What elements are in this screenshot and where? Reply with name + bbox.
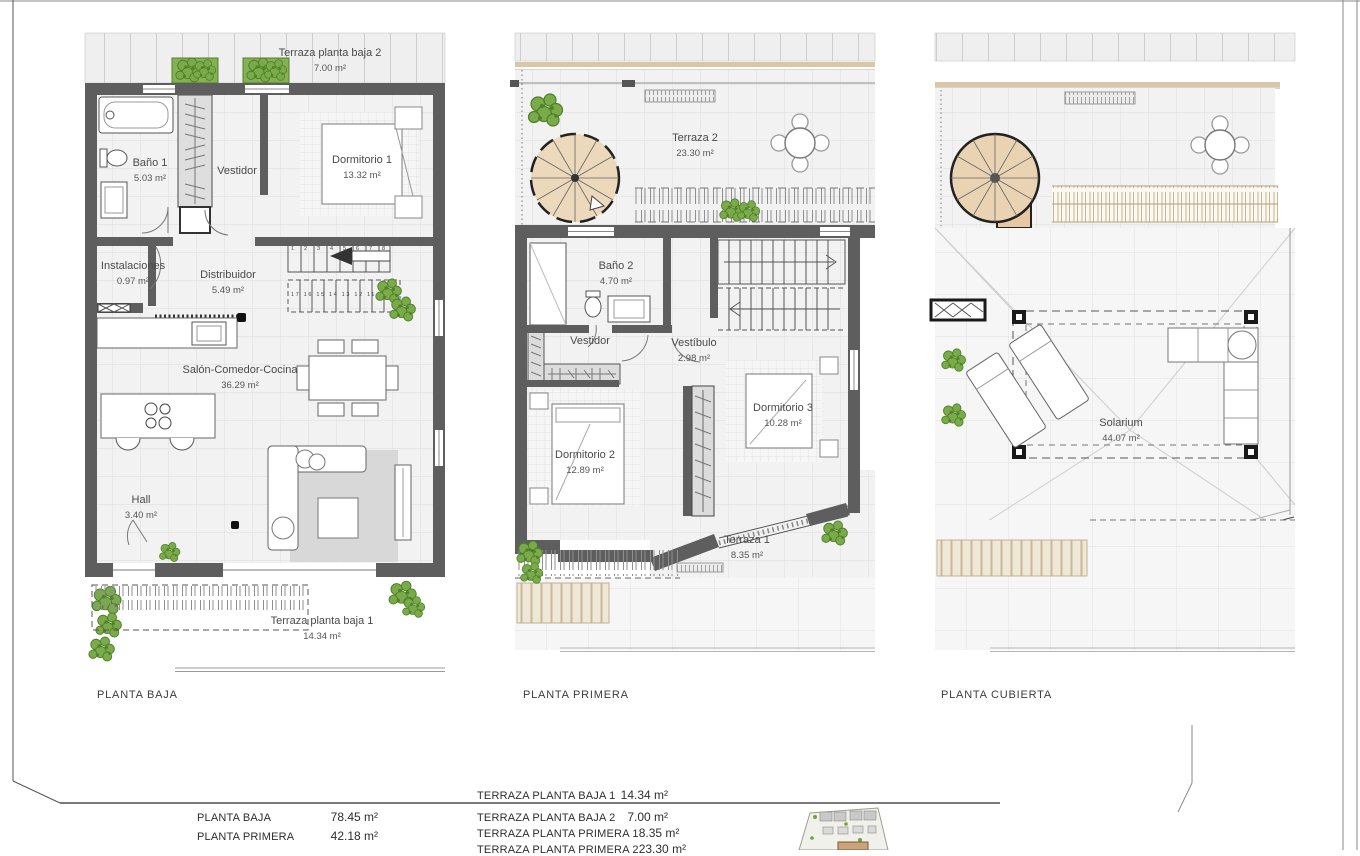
closet-vestidor [178, 95, 212, 233]
room-name: Vestidor [217, 164, 257, 178]
summary-value: 23.30 m² [639, 842, 686, 856]
skylight-vent [931, 300, 985, 320]
room-name: Terraza 1 [724, 533, 770, 547]
room-area: 10.28 m² [753, 417, 813, 431]
spiral-staircase [531, 134, 619, 222]
bottom-terrace-cubierta [935, 520, 1295, 652]
room-name: Baño 2 [599, 259, 634, 273]
room-label-vestibulo: Vestíbulo 2.98 m² [671, 336, 716, 366]
room-name: Dormitorio 3 [753, 401, 813, 415]
summary-label: TERRAZA PLANTA BAJA 1 [477, 790, 616, 802]
floorplan-planta-cubierta [931, 33, 1295, 652]
room-area: 5.49 m² [200, 284, 256, 298]
plan-title-baja: PLANTA BAJA [97, 689, 178, 701]
summary-value: 42.18 m² [331, 829, 378, 843]
room-label-hall: Hall 3.40 m² [125, 493, 157, 523]
room-area: 3.40 m² [125, 509, 157, 523]
room-area: 2.98 m² [671, 352, 716, 366]
plan-title-primera: PLANTA PRIMERA [523, 689, 629, 701]
room-area: 36.29 m² [183, 379, 298, 393]
floorplan-planta-baja: 1 2 3 4 5 6 7 8 17 16 15 14 13 12 11 10 … [85, 33, 445, 672]
room-area: 8.35 m² [724, 549, 770, 563]
summary-row-terraza-pb1: TERRAZA PLANTA BAJA 1 14.34 m² [477, 788, 668, 802]
stair-step-numbers-up: 1 2 3 4 5 6 7 8 [291, 246, 385, 252]
summary-row-planta-primera: PLANTA PRIMERA 42.18 m² [197, 829, 378, 843]
room-label-solarium: Solarium 44.07 m² [1099, 416, 1142, 446]
site-plan-thumbnail [799, 808, 888, 850]
summary-value: 14.34 m² [621, 788, 668, 802]
room-label-dormitorio-1: Dormitorio 1 13.32 m² [332, 153, 392, 183]
highlighted-unit [838, 842, 868, 850]
summary-label: TERRAZA PLANTA PRIMERA 2 [477, 844, 639, 856]
room-label-dormitorio-3: Dormitorio 3 10.28 m² [753, 401, 813, 431]
room-name: Baño 1 [133, 156, 168, 170]
room-label-vestidor-baja: Vestidor [217, 164, 257, 178]
room-area: 0.97 m² [101, 275, 165, 289]
room-area: 4.70 m² [599, 275, 634, 289]
room-label-bano-2: Baño 2 4.70 m² [599, 259, 634, 289]
room-label-terraza-pb1: Terraza planta baja 1 14.34 m² [271, 614, 374, 644]
room-name: Salón-Comedor-Cocina [183, 363, 298, 377]
plan-title-cubierta: PLANTA CUBIERTA [941, 689, 1052, 701]
room-area: 5.03 m² [133, 172, 168, 186]
summary-value: 8.35 m² [639, 826, 680, 840]
room-name: Dormitorio 2 [555, 448, 615, 462]
room-label-dormitorio-2: Dormitorio 2 12.89 m² [555, 448, 615, 478]
room-label-distribuidor: Distribuidor 5.49 m² [200, 268, 256, 298]
summary-row-planta-baja: PLANTA BAJA 78.45 m² [197, 810, 378, 824]
summary-row-terraza-pb2: TERRAZA PLANTA BAJA 2 7.00 m² [477, 810, 668, 824]
room-label-terraza-pb2: Terraza planta baja 2 7.00 m² [279, 46, 382, 76]
room-area: 13.32 m² [332, 169, 392, 183]
room-name: Terraza planta baja 2 [279, 46, 382, 60]
room-label-instalaciones: Instalaciones 0.97 m² [101, 259, 165, 289]
central-wardrobe [683, 386, 714, 516]
summary-value: 78.45 m² [331, 810, 378, 824]
summary-row-terraza-pp1: TERRAZA PLANTA PRIMERA 1 8.35 m² [477, 826, 668, 840]
room-name: Hall [125, 493, 157, 507]
room-name: Dormitorio 1 [332, 153, 392, 167]
room-name: Vestidor [570, 334, 610, 348]
room-label-terraza-2: Terraza 2 23.30 m² [672, 131, 718, 161]
room-area: 23.30 m² [672, 147, 718, 161]
room-name: Terraza 2 [672, 131, 718, 145]
room-name: Distribuidor [200, 268, 256, 282]
floorplan-drawing: 1 2 3 4 5 6 7 8 17 16 15 14 13 12 11 10 … [0, 0, 1360, 850]
vent-box [98, 304, 130, 312]
room-name: Vestíbulo [671, 336, 716, 350]
summary-row-terraza-pp2: TERRAZA PLANTA PRIMERA 2 23.30 m² [477, 842, 668, 856]
summary-value: 7.00 m² [627, 810, 668, 824]
room-label-terraza-1: Terraza 1 8.35 m² [724, 533, 770, 563]
room-name: Solarium [1099, 416, 1142, 430]
summary-label: TERRAZA PLANTA BAJA 2 [477, 812, 616, 824]
room-area: 7.00 m² [279, 62, 382, 76]
room-area: 14.34 m² [271, 630, 374, 644]
roof-railing [1052, 186, 1278, 222]
room-area: 12.89 m² [555, 464, 615, 478]
summary-label: PLANTA PRIMERA [197, 831, 294, 843]
room-label-vestidor-primera: Vestidor [570, 334, 610, 348]
room-name: Terraza planta baja 1 [271, 614, 374, 628]
room-label-salon: Salón-Comedor-Cocina 36.29 m² [183, 363, 298, 393]
summary-label: TERRAZA PLANTA PRIMERA 1 [477, 828, 639, 840]
room-label-bano-1: Baño 1 5.03 m² [133, 156, 168, 186]
floor-grille [645, 90, 715, 102]
room-name: Instalaciones [101, 259, 165, 273]
summary-label: PLANTA BAJA [197, 812, 271, 824]
floorplan-sheet: 1 2 3 4 5 6 7 8 17 16 15 14 13 12 11 10 … [0, 0, 1360, 850]
room-area: 44.07 m² [1099, 432, 1142, 446]
